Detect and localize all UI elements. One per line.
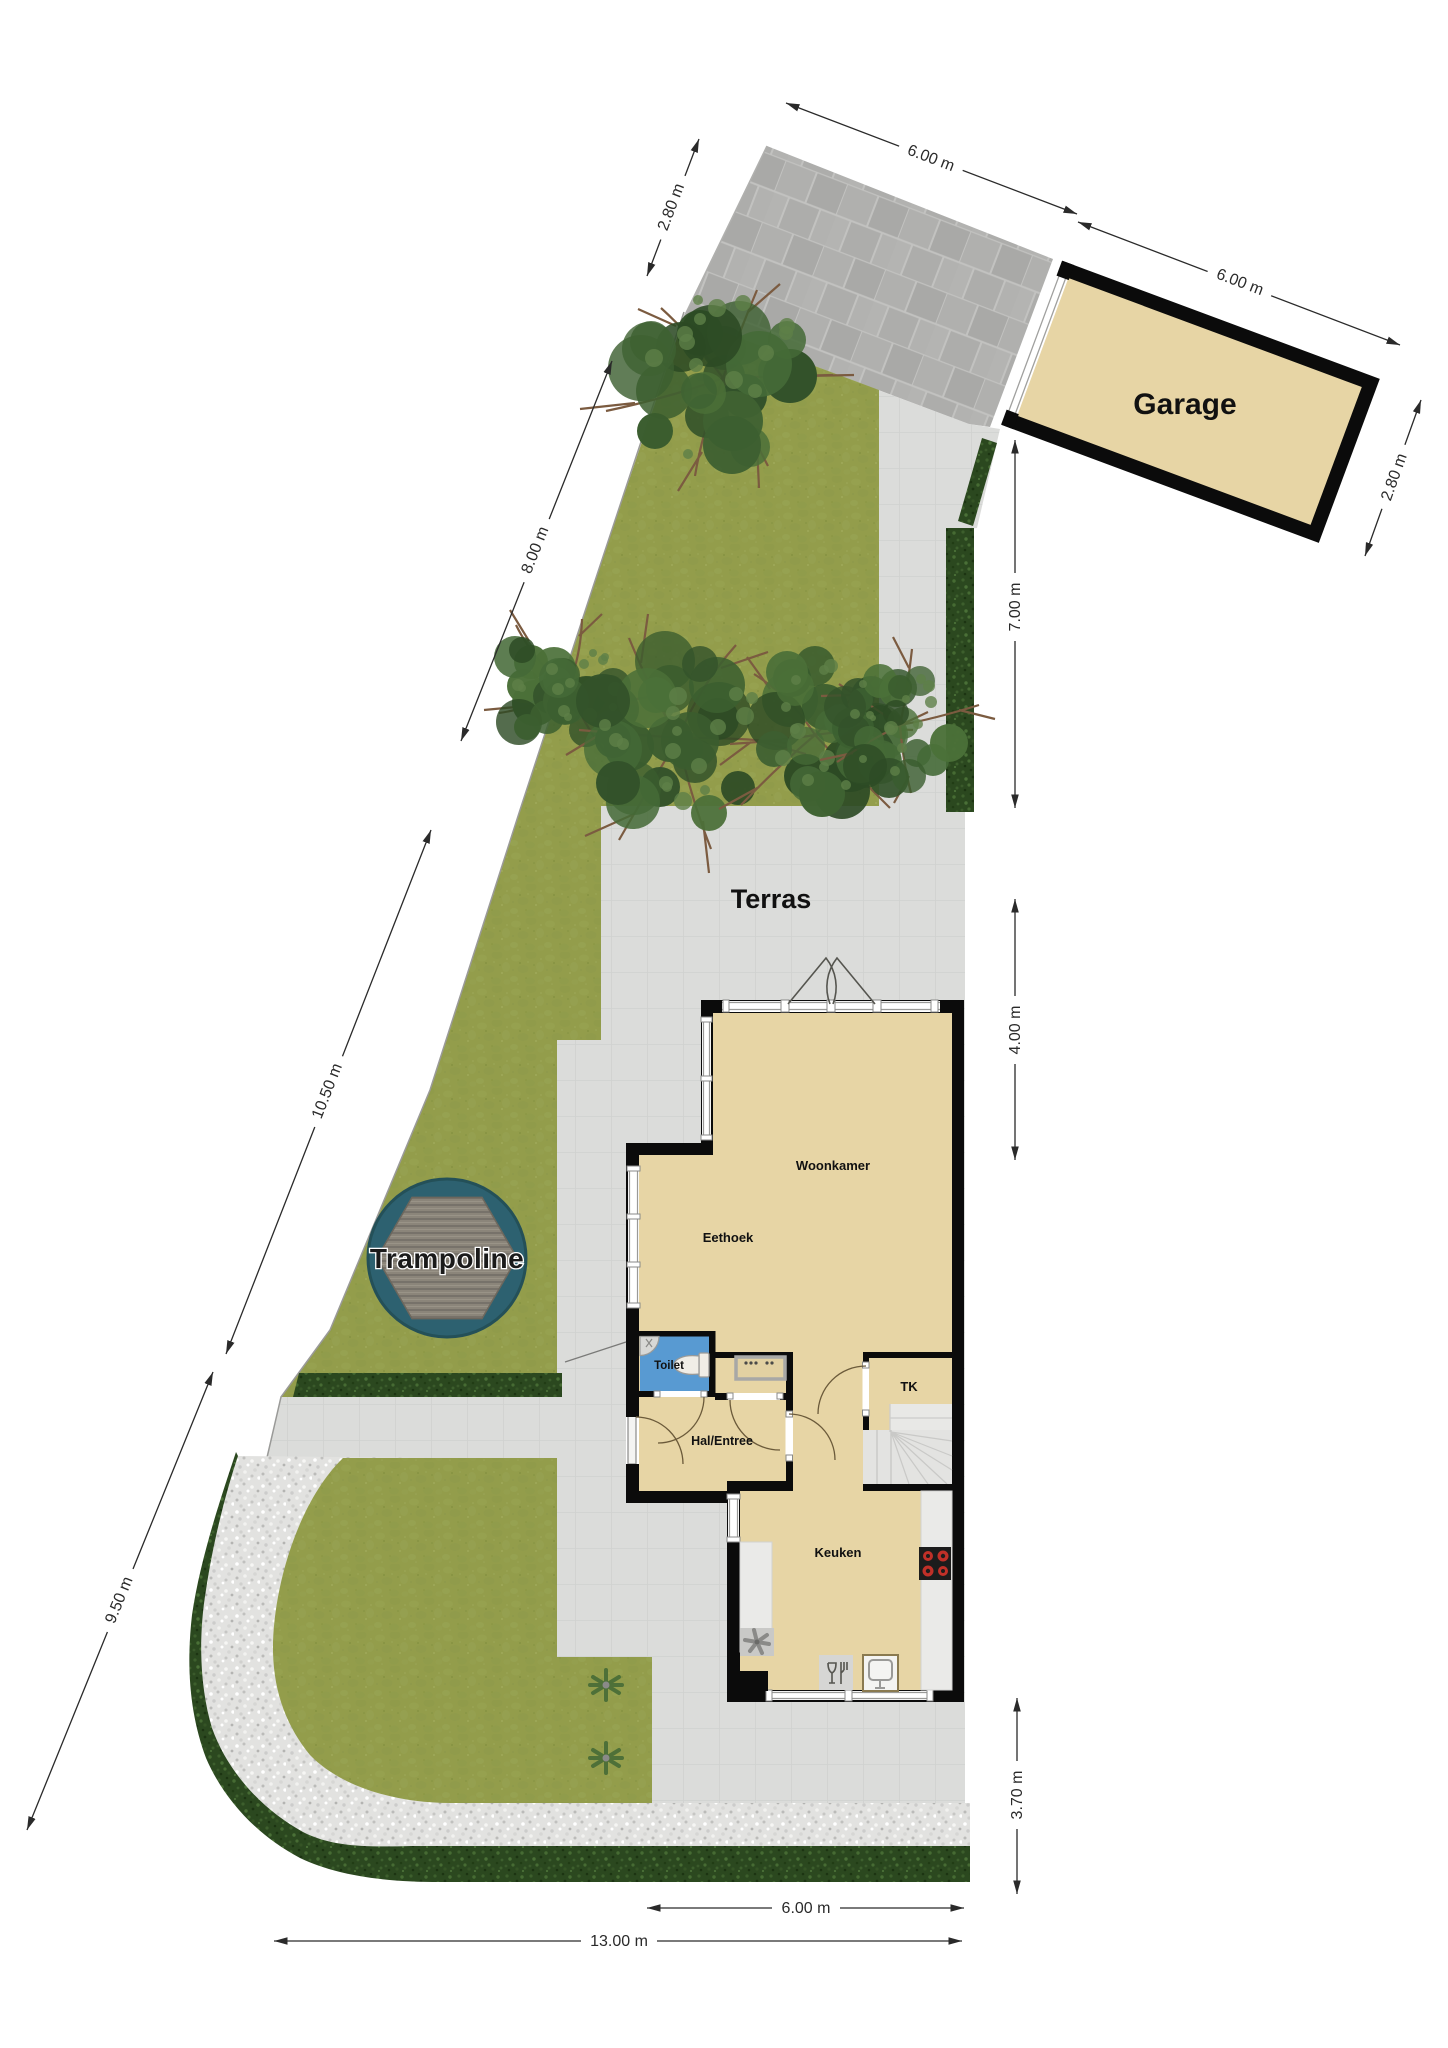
svg-text:Keuken: Keuken [815, 1545, 862, 1560]
svg-text:Trampoline: Trampoline [370, 1243, 524, 1274]
svg-text:TK: TK [900, 1379, 918, 1394]
svg-text:Hal/Entree: Hal/Entree [691, 1434, 753, 1448]
svg-text:13.00 m: 13.00 m [590, 1933, 648, 1950]
svg-text:Terras: Terras [731, 884, 812, 914]
svg-text:6.00 m: 6.00 m [782, 1900, 831, 1917]
svg-text:Toilet: Toilet [654, 1360, 684, 1372]
svg-text:Garage: Garage [1133, 388, 1236, 421]
svg-text:Woonkamer: Woonkamer [796, 1158, 870, 1173]
svg-text:Eethoek: Eethoek [703, 1230, 754, 1245]
svg-text:4.00 m: 4.00 m [1007, 1006, 1024, 1055]
svg-text:7.00 m: 7.00 m [1007, 583, 1024, 632]
svg-text:3.70 m: 3.70 m [1009, 1771, 1026, 1820]
